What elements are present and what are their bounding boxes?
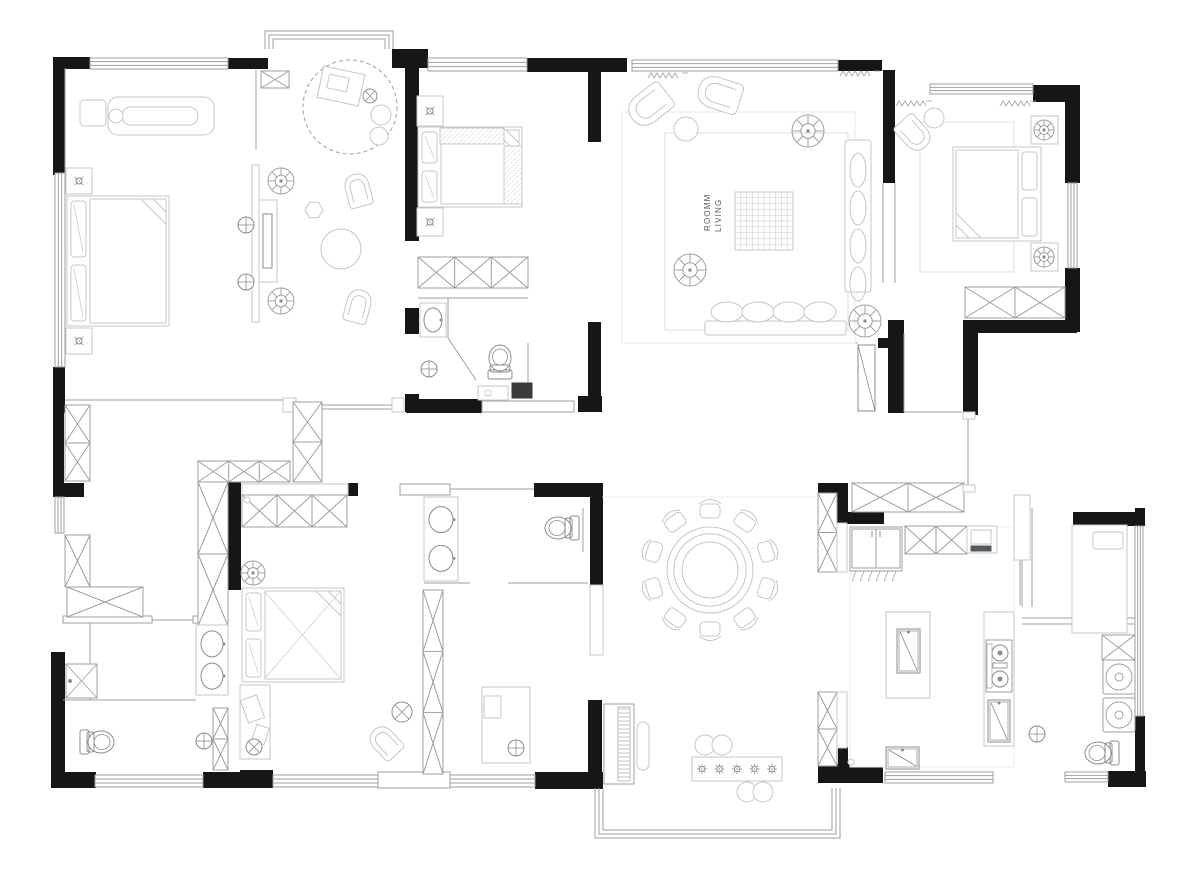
ceiling-light (1034, 120, 1054, 140)
knob (244, 497, 250, 503)
kitchen-cabinet (905, 526, 967, 554)
window (90, 58, 228, 69)
stool (712, 735, 732, 755)
wall-segment (1135, 716, 1145, 773)
wall-segment (578, 396, 602, 412)
lounger-person-body (122, 107, 198, 125)
wall-segment (51, 772, 96, 788)
wall-segment (53, 483, 84, 497)
wall-segment (837, 483, 848, 524)
bed4 (242, 588, 344, 682)
window (930, 84, 1033, 94)
window (1135, 526, 1143, 716)
closet (65, 535, 90, 587)
living-chaise (845, 140, 871, 301)
window (1065, 772, 1108, 782)
nook-pouf (370, 127, 388, 145)
kitchen-cabinet (852, 483, 964, 512)
bay-outline (265, 31, 393, 49)
window (1068, 183, 1077, 268)
door-casing (963, 412, 975, 419)
laundry-cabinet (1102, 635, 1135, 660)
bed2-nightstand-top (417, 96, 443, 126)
curtain (840, 71, 880, 76)
divider-wardrobe (423, 590, 443, 774)
kitchen-appliance-inner (971, 530, 991, 544)
wall-segment (588, 322, 601, 400)
corridor-wall (1014, 495, 1030, 560)
furniture-layer (63, 60, 1135, 802)
closet (65, 405, 90, 481)
wall-segment (228, 58, 268, 69)
master-tv (263, 214, 272, 268)
wall-segment (883, 70, 895, 183)
desk-chair (508, 740, 524, 756)
dining-wall-lines (837, 523, 847, 572)
dining-cabinet (818, 692, 837, 766)
ceiling-light (849, 305, 881, 337)
plant-table (692, 757, 782, 781)
door-threshold (400, 484, 450, 495)
curtain (896, 101, 932, 106)
kitchen-sink (988, 700, 1010, 742)
bath2-cabinet-knob (485, 390, 491, 396)
window (273, 775, 378, 787)
wall-segment (588, 60, 601, 142)
bed2-wardrobe (418, 257, 528, 288)
kitchen-appliance-bar (971, 546, 991, 551)
window (95, 775, 203, 787)
ceiling-light (241, 561, 265, 585)
washing-machine (1103, 660, 1135, 694)
bay-outline (599, 788, 836, 834)
side-table (392, 702, 412, 722)
stool (246, 739, 262, 755)
wall-segment (535, 772, 602, 789)
bath1-vanity (196, 625, 228, 695)
window (632, 60, 838, 71)
master-bed (67, 196, 169, 326)
ceiling-light (1034, 247, 1054, 267)
wall-segment (888, 320, 904, 413)
wall-segment (534, 483, 590, 497)
dining-left-cabinet (590, 585, 603, 655)
wall-segment (967, 320, 1077, 333)
bath2-dark-unit (512, 383, 532, 398)
wall-segment (405, 308, 419, 334)
drain (848, 759, 854, 765)
wall-segment (838, 60, 882, 71)
bath1-cabinet (213, 708, 228, 770)
closet (198, 482, 228, 626)
door-casing (963, 485, 975, 492)
door-threshold (482, 401, 574, 412)
wall-segment (848, 512, 884, 524)
piano (604, 704, 649, 784)
window (885, 772, 993, 783)
bath3-toilet (545, 516, 579, 540)
wall-segment (53, 57, 65, 175)
bath2-cabinet (478, 386, 508, 400)
island-sink (897, 629, 920, 673)
shower (66, 664, 97, 698)
floor-plan-canvas: ROOMMLIVING (0, 0, 1200, 879)
wall-segment (240, 770, 273, 788)
shower-head (421, 361, 437, 377)
wall-segment (1108, 771, 1146, 787)
wall-segment (1065, 85, 1080, 183)
window (450, 775, 535, 787)
window (55, 497, 64, 533)
valve (1029, 726, 1045, 742)
master-pouf (321, 229, 361, 269)
bed2-nightstand-bottom (417, 208, 443, 236)
bath2-toilet (488, 345, 512, 379)
wall-segment (1073, 512, 1136, 526)
cooktop (986, 640, 1012, 692)
bath2-sink (420, 303, 446, 337)
room-label: LIVING (714, 199, 723, 232)
dining-cabinet (818, 493, 837, 572)
living-side-table (674, 117, 698, 141)
room-label: ROOMM (703, 193, 712, 231)
closet (67, 587, 143, 617)
maid-pillow (1093, 532, 1123, 549)
master-nightstand-top (66, 168, 92, 194)
closet (293, 402, 322, 482)
master-partition (252, 165, 259, 322)
wall-segment (1135, 508, 1145, 526)
wall-segment (406, 399, 482, 413)
bed4-chair (365, 722, 405, 762)
wall-segment (348, 483, 358, 496)
speaker (238, 274, 254, 290)
nook-pouf (371, 105, 391, 125)
nook-stool (363, 89, 377, 103)
ceiling-light (268, 168, 294, 194)
bay-outline (273, 39, 385, 49)
living-armchair (694, 73, 745, 116)
floor-plan-page: ROOMMLIVING (0, 0, 1200, 879)
wall-segment (527, 58, 627, 72)
living-grid-rug (735, 192, 793, 250)
lounger-person-head (109, 109, 123, 123)
window (428, 58, 527, 71)
study-monitor (484, 696, 501, 718)
master-bay-cabinet (261, 71, 289, 88)
wall-segment (228, 482, 241, 590)
bed2-hatch-top (440, 128, 504, 144)
bed4-wardrobe (242, 495, 347, 527)
dining-table (640, 500, 781, 641)
curtain (648, 73, 688, 78)
lounger-pad-left (80, 100, 106, 126)
bed2-hatch-right (504, 146, 522, 204)
wall-segment (51, 652, 65, 773)
bay-outline (269, 35, 389, 49)
ceiling-light (268, 288, 294, 314)
bath4-toilet (1085, 741, 1119, 765)
bay-outline (603, 788, 832, 830)
small-sink (886, 747, 919, 769)
living-door (858, 345, 875, 411)
side-table (305, 202, 323, 218)
stool (753, 782, 773, 802)
dining-wall-lines (837, 692, 847, 748)
master-armchair (342, 171, 374, 209)
curtain (1000, 101, 1036, 106)
master-nightstand-bottom (66, 328, 92, 354)
closet (198, 461, 290, 482)
wall-segment (838, 747, 848, 766)
wall-segment (53, 403, 64, 484)
bedroom3-side-table (924, 108, 944, 128)
bath3-vanity (424, 497, 458, 581)
washing-machine (1103, 698, 1135, 732)
window (55, 173, 65, 367)
wall-band (242, 484, 348, 495)
master-armchair (342, 287, 374, 325)
valve (196, 733, 212, 749)
ceiling-light (674, 254, 706, 286)
bedroom3-bed (953, 147, 1041, 241)
wall-segment (963, 320, 978, 415)
ceiling-light (792, 115, 824, 147)
wall-segment (590, 483, 603, 587)
bath1-toilet (80, 730, 114, 754)
door-casing (392, 398, 404, 412)
speaker (238, 217, 254, 233)
bedroom3-wardrobe (965, 287, 1065, 318)
